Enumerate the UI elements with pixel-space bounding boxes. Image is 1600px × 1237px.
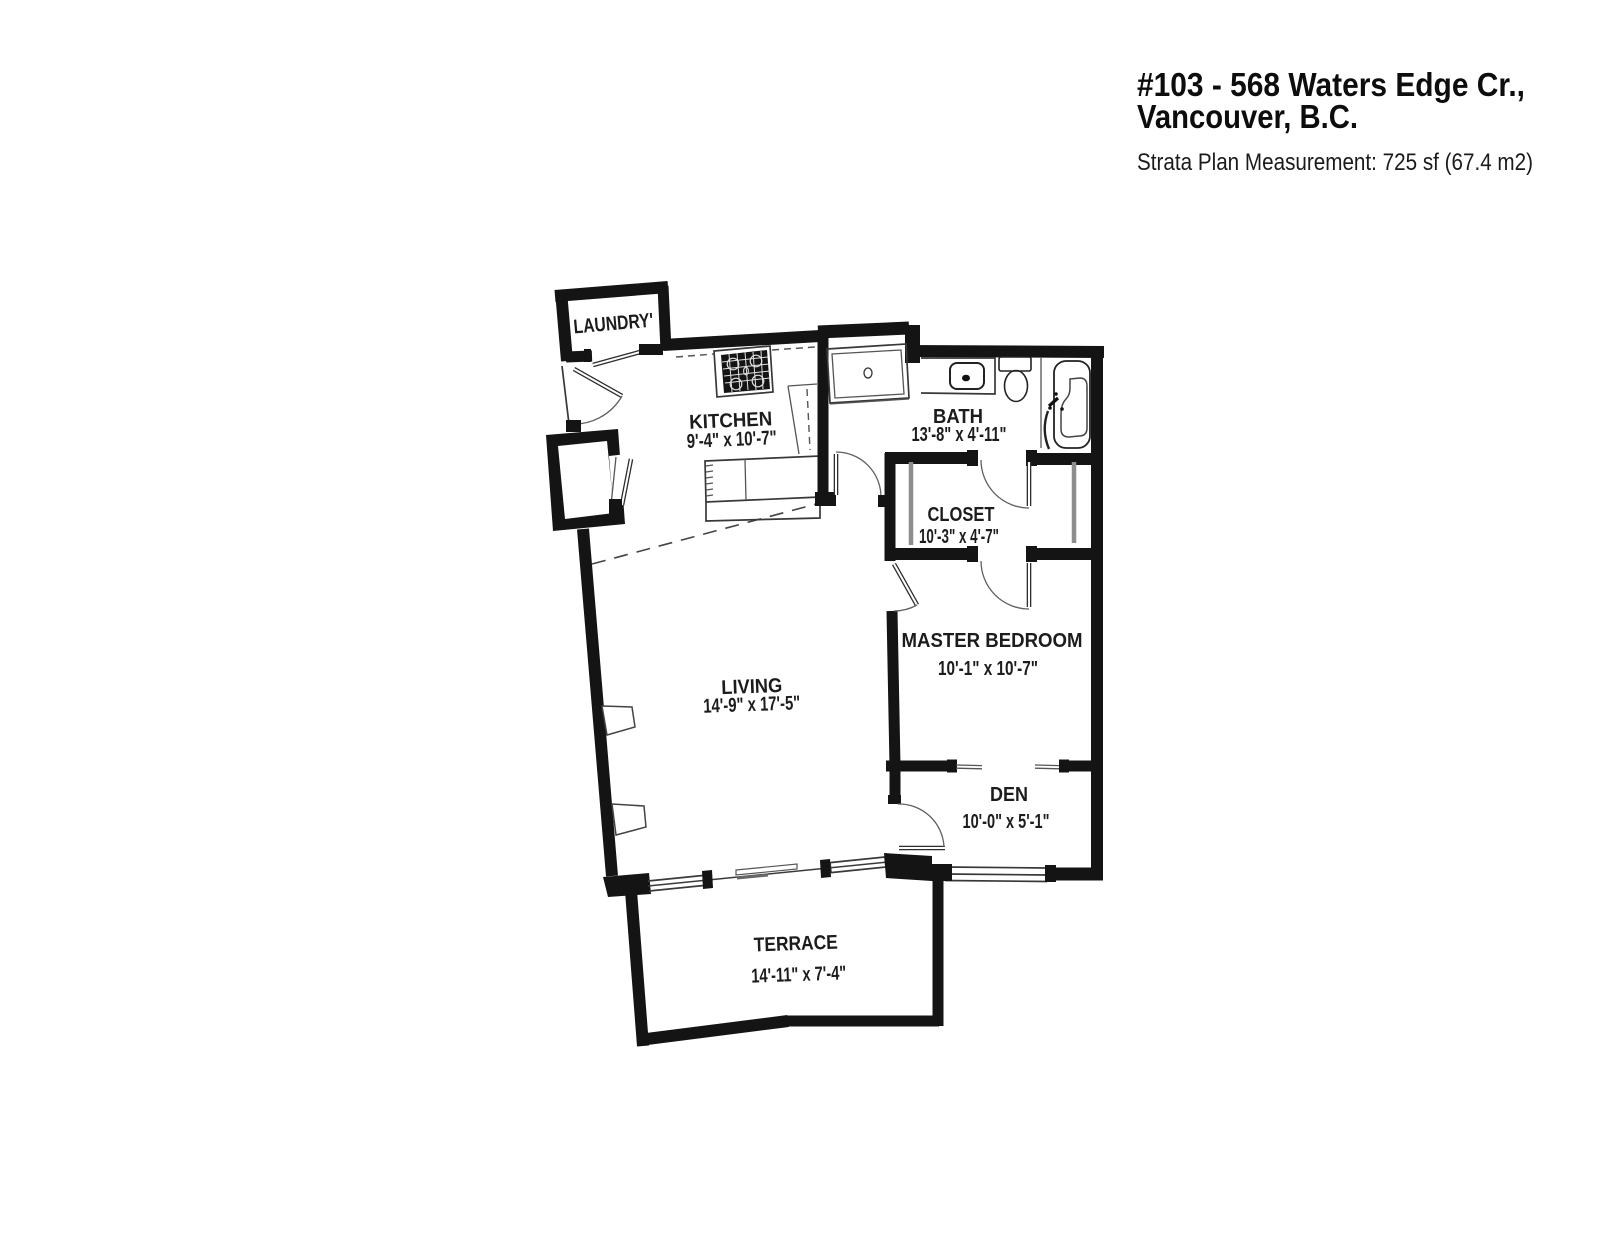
svg-text:9'-4" x 10'-7": 9'-4" x 10'-7" — [686, 427, 777, 453]
svg-text:10'-3" x 4'-7": 10'-3" x 4'-7" — [919, 526, 999, 548]
svg-text:10'-1" x 10'-7": 10'-1" x 10'-7" — [938, 658, 1038, 680]
svg-text:10'-0" x 5'-1": 10'-0" x 5'-1" — [963, 811, 1050, 833]
svg-text:LAUNDRY': LAUNDRY' — [573, 310, 655, 339]
svg-text:14'-9" x 17'-5": 14'-9" x 17'-5" — [703, 692, 801, 717]
svg-text:Vancouver, B.C.: Vancouver, B.C. — [1137, 98, 1358, 135]
svg-text:DEN: DEN — [990, 784, 1028, 806]
svg-text:MASTER BEDROOM: MASTER BEDROOM — [902, 630, 1083, 652]
svg-text:14'-11" x 7'-4": 14'-11" x 7'-4" — [751, 962, 847, 987]
svg-text:13'-8" x 4'-11": 13'-8" x 4'-11" — [912, 424, 1007, 446]
svg-text:CLOSET: CLOSET — [928, 504, 995, 526]
svg-text:TERRACE: TERRACE — [753, 932, 838, 957]
svg-text:Strata Plan Measurement: 725 s: Strata Plan Measurement: 725 sf (67.4 m2… — [1137, 149, 1533, 176]
